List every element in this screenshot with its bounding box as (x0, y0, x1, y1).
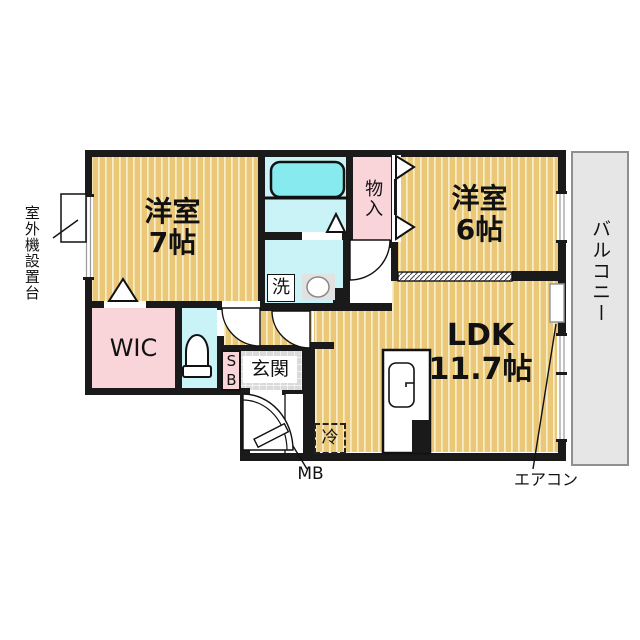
window-yoshitsu6 (557, 193, 567, 241)
room-label-yoshitsu6: 洋室6帖 (407, 181, 552, 247)
room-label-wic: WIC (92, 333, 175, 363)
sliding-partition (398, 272, 512, 281)
room-label-monoire: 物入 (356, 164, 388, 234)
shoebox-label: SB (221, 352, 241, 389)
fridge-space-label: 冷 (314, 423, 346, 454)
kitchen-end-wall (412, 420, 430, 453)
wall-washroom-east (343, 240, 350, 290)
toilet-bowl-icon (186, 335, 208, 368)
wic-door-sill (104, 301, 146, 308)
yoshitsu7-door-sill (222, 301, 260, 308)
window-tick (83, 277, 94, 280)
window-tick (556, 240, 567, 243)
room-label-ldk: LDK11.7帖 (393, 315, 568, 391)
room-label-genkan: 玄関 (243, 356, 297, 383)
bathtub (271, 162, 344, 197)
ldk-name: LDK (428, 319, 532, 353)
laundry-machine-label: 洗 (267, 274, 295, 302)
balcony-label: バルコニー (586, 196, 613, 346)
yoshitsu7-name: 洋室 (144, 196, 200, 227)
ldk-size: 11.7帖 (428, 353, 532, 387)
wall-bath-east (346, 150, 353, 240)
outdoor-unit-label: 室外機設置台 (17, 190, 46, 315)
wall-wic-east (175, 308, 182, 388)
toilet-tank-icon (183, 366, 211, 377)
room-label-yoshitsu7: 洋室7帖 (100, 194, 245, 260)
bath-door-sill (302, 232, 342, 240)
wall-yoshitsu7-east (258, 150, 265, 311)
washbasin-bowl-icon (307, 277, 329, 297)
yoshitsu6-size: 6帖 (451, 214, 507, 245)
yoshitsu7-size: 7帖 (144, 227, 200, 258)
window-tick (556, 191, 567, 194)
aircon-label: エアコン (500, 470, 592, 490)
wall-washroom-corner (333, 288, 350, 303)
wall-partition-west (391, 271, 398, 281)
monoire-door-mullion (394, 179, 397, 215)
wall-top (85, 150, 566, 157)
outdoor-unit-platform (61, 194, 86, 242)
yoshitsu6-name: 洋室 (451, 183, 507, 214)
wall-partition-east (512, 271, 558, 281)
floorplan-canvas: 洋室7帖 洋室6帖 LDK11.7帖 WIC 物入 玄関 洗 冷 SB バルコニ… (0, 0, 640, 640)
washroom-door-swing (350, 240, 390, 280)
window-tick (556, 439, 567, 442)
meter-box-label: MB (288, 465, 333, 485)
wall-washroom-south (258, 303, 392, 311)
